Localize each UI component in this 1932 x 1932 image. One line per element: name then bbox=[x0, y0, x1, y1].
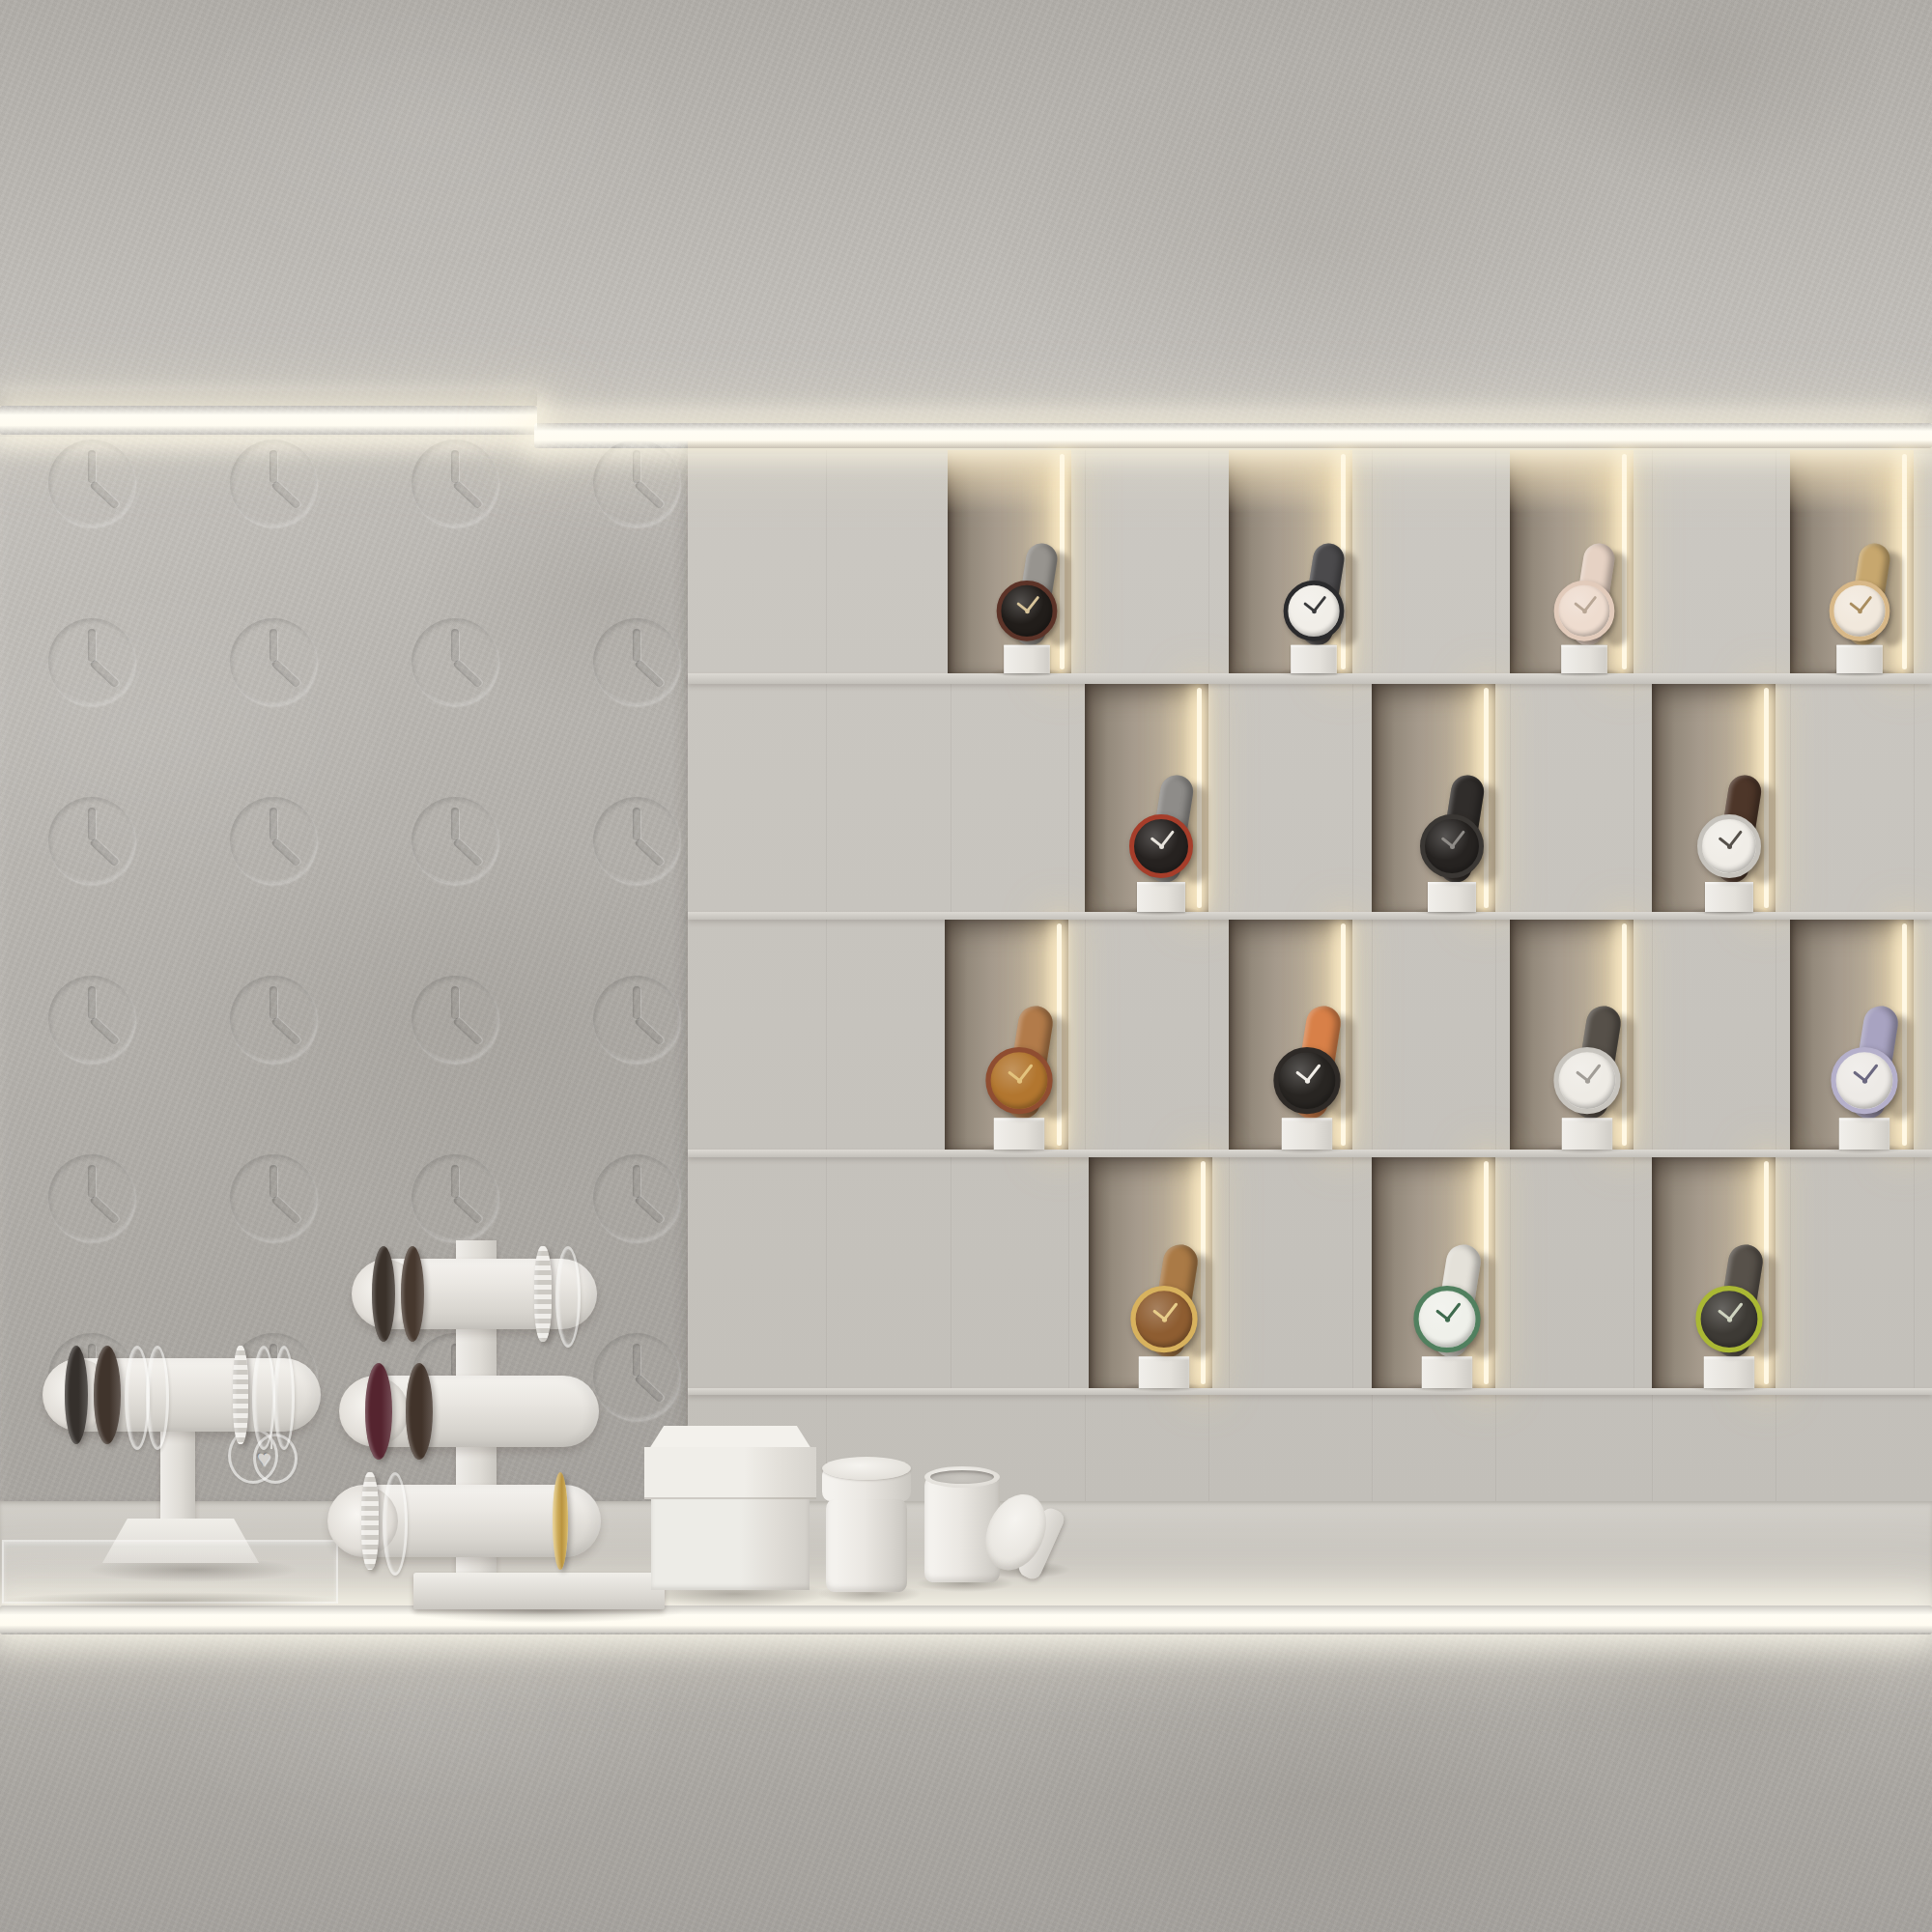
panel-seam bbox=[1352, 1157, 1354, 1388]
cube-body bbox=[651, 1499, 810, 1590]
embossed-clock bbox=[412, 976, 498, 1063]
embossed-clock bbox=[48, 797, 135, 884]
clock-minute-hand-icon bbox=[633, 629, 640, 662]
clock-minute-hand-icon bbox=[633, 1344, 640, 1377]
panel-seam bbox=[1652, 1395, 1654, 1501]
clock-minute-hand-icon bbox=[270, 1165, 277, 1198]
watch-crown-dot bbox=[1861, 1078, 1866, 1083]
watch-store-scene: ♥ bbox=[0, 0, 1932, 1932]
panel-seam bbox=[826, 920, 828, 1150]
clock-minute-hand-icon bbox=[451, 986, 459, 1019]
panel-seam bbox=[1085, 1395, 1087, 1501]
watch-stand-block bbox=[1282, 1118, 1333, 1150]
cube-top-face bbox=[649, 1426, 811, 1449]
embossed-clock bbox=[412, 440, 498, 526]
watch-face bbox=[1284, 581, 1345, 641]
bangle-clear bbox=[383, 1472, 408, 1576]
acrylic-tray bbox=[2, 1540, 338, 1604]
watch-stand-block bbox=[1562, 1118, 1613, 1150]
clock-minute-hand-icon bbox=[633, 1165, 640, 1198]
panel-seam bbox=[826, 450, 828, 673]
clock-hour-hand-icon bbox=[270, 480, 301, 509]
tbar-stand-triple-base bbox=[413, 1573, 665, 1609]
heart-charm-icon: ♥ bbox=[257, 1447, 270, 1470]
bangle-beaded bbox=[534, 1246, 552, 1342]
bangle-solid bbox=[401, 1246, 424, 1342]
watch-stand-block bbox=[1422, 1356, 1473, 1388]
clock-hour-hand-icon bbox=[89, 838, 120, 867]
clock-hour-hand-icon bbox=[270, 838, 301, 867]
watch-face bbox=[1129, 814, 1193, 878]
counter-led-strip bbox=[0, 1605, 1932, 1634]
panel-seam bbox=[1776, 450, 1777, 673]
panel-seam bbox=[1352, 684, 1354, 912]
bangle-clear bbox=[555, 1246, 581, 1348]
clock-minute-hand-icon bbox=[88, 1165, 96, 1198]
embossed-clock bbox=[230, 976, 317, 1063]
panel-seam bbox=[1208, 920, 1210, 1150]
watch-display bbox=[1521, 998, 1654, 1151]
watch-display bbox=[1098, 1236, 1231, 1389]
watch-face bbox=[1420, 814, 1484, 878]
clock-minute-hand-icon bbox=[270, 450, 277, 483]
watch-crown-dot bbox=[1016, 1078, 1021, 1083]
embossed-clock bbox=[48, 976, 135, 1063]
embossed-clock bbox=[48, 618, 135, 705]
panel-seam bbox=[826, 684, 828, 912]
clock-hour-hand-icon bbox=[452, 480, 483, 509]
cube-lid bbox=[644, 1447, 816, 1499]
clock-minute-hand-icon bbox=[451, 629, 459, 662]
watch-crown-dot bbox=[1858, 609, 1862, 613]
watch-crown-dot bbox=[1726, 1317, 1731, 1321]
clock-minute-hand-icon bbox=[88, 450, 96, 483]
embossed-clock bbox=[593, 440, 680, 526]
cove-led-strip-left bbox=[0, 406, 537, 435]
watch-display bbox=[1663, 1236, 1796, 1389]
clock-minute-hand-icon bbox=[451, 808, 459, 840]
clock-hour-hand-icon bbox=[270, 1016, 301, 1045]
clock-minute-hand-icon bbox=[633, 986, 640, 1019]
watch-stand-block bbox=[1836, 645, 1883, 673]
clock-hour-hand-icon bbox=[270, 1195, 301, 1224]
watch-display bbox=[1381, 1236, 1514, 1389]
watch-stand-block bbox=[1839, 1118, 1890, 1150]
bangle-solid bbox=[372, 1246, 395, 1342]
watch-display bbox=[1241, 998, 1374, 1151]
embossed-clock bbox=[593, 1333, 680, 1420]
panel-seam bbox=[1914, 684, 1916, 912]
watch-crown-dot bbox=[1444, 1317, 1449, 1321]
embossed-clock bbox=[593, 797, 680, 884]
watch-face bbox=[1830, 581, 1890, 641]
watch-display bbox=[1389, 767, 1515, 912]
panel-seam bbox=[1068, 684, 1070, 912]
embossed-clock bbox=[230, 618, 317, 705]
cove-recess-shadow-main bbox=[534, 412, 1932, 423]
clock-hour-hand-icon bbox=[89, 659, 120, 688]
panel-seam bbox=[1372, 1395, 1374, 1501]
clock-hour-hand-icon bbox=[634, 1195, 665, 1224]
clock-minute-hand-icon bbox=[270, 986, 277, 1019]
watch-face bbox=[1553, 1047, 1620, 1114]
cove-led-strip-main bbox=[534, 423, 1932, 448]
gift-box-cube bbox=[647, 1426, 813, 1592]
panel-seam bbox=[1634, 1157, 1635, 1388]
embossed-clock bbox=[593, 976, 680, 1063]
tbar-stand-triple-bar-1 bbox=[353, 1259, 597, 1329]
watch-crown-dot bbox=[1582, 609, 1587, 613]
bangle-solid bbox=[406, 1363, 433, 1460]
watch-face bbox=[1697, 814, 1761, 878]
embossed-clock bbox=[48, 440, 135, 526]
panel-seam bbox=[1495, 920, 1497, 1150]
panel-seam bbox=[1208, 1395, 1210, 1501]
clock-hour-hand-icon bbox=[452, 1195, 483, 1224]
watch-display bbox=[1098, 767, 1224, 912]
clock-hour-hand-icon bbox=[89, 1016, 120, 1045]
tbar-stand-single-post bbox=[160, 1428, 195, 1524]
back-wall-upper bbox=[0, 0, 1932, 437]
clock-minute-hand-icon bbox=[633, 450, 640, 483]
panel-seam bbox=[1208, 450, 1210, 673]
watch-display bbox=[1524, 536, 1644, 674]
clock-hour-hand-icon bbox=[452, 1016, 483, 1045]
panel-seam bbox=[1068, 1157, 1070, 1388]
clock-hour-hand-icon bbox=[452, 838, 483, 867]
watch-stand-block bbox=[1291, 645, 1337, 673]
panel-seam bbox=[1776, 920, 1777, 1150]
clock-hour-hand-icon bbox=[634, 1374, 665, 1403]
watch-stand-block bbox=[994, 1118, 1045, 1150]
watch-stand-block bbox=[1561, 645, 1607, 673]
panel-seam bbox=[1776, 1395, 1777, 1501]
watch-face bbox=[1413, 1286, 1480, 1352]
tbar-stand-single-bar bbox=[43, 1358, 321, 1432]
embossed-clock bbox=[412, 797, 498, 884]
watch-face bbox=[1130, 1286, 1197, 1352]
watch-face bbox=[1273, 1047, 1340, 1114]
panel-seam bbox=[1229, 684, 1231, 912]
clock-minute-hand-icon bbox=[633, 808, 640, 840]
gift-cylinder-lidded bbox=[824, 1457, 909, 1594]
watch-display bbox=[953, 998, 1086, 1151]
panel-seam bbox=[1495, 450, 1497, 673]
bangle-clear bbox=[273, 1346, 295, 1450]
embossed-clock bbox=[412, 1154, 498, 1241]
bangle-solid bbox=[365, 1363, 392, 1460]
watch-crown-dot bbox=[1450, 844, 1455, 849]
tbar-stand-triple-bar-2 bbox=[340, 1376, 599, 1447]
watch-display bbox=[1800, 536, 1919, 674]
watch-stand-block bbox=[1705, 882, 1753, 912]
clock-minute-hand-icon bbox=[88, 629, 96, 662]
bangle-clear bbox=[252, 1346, 275, 1450]
watch-crown-dot bbox=[1312, 609, 1317, 613]
watch-face bbox=[1831, 1047, 1897, 1114]
clock-hour-hand-icon bbox=[634, 838, 665, 867]
watch-face bbox=[985, 1047, 1052, 1114]
watch-crown-dot bbox=[1025, 609, 1030, 613]
clock-hour-hand-icon bbox=[634, 1016, 665, 1045]
clock-hour-hand-icon bbox=[270, 659, 301, 688]
watch-crown-dot bbox=[1159, 844, 1164, 849]
panel-seam bbox=[1652, 450, 1654, 673]
panel-seam bbox=[1495, 1395, 1497, 1501]
clock-hour-hand-icon bbox=[89, 480, 120, 509]
embossed-clock bbox=[230, 1154, 317, 1241]
clock-hour-hand-icon bbox=[89, 1195, 120, 1224]
watch-face bbox=[1554, 581, 1615, 641]
watch-face bbox=[997, 581, 1058, 641]
embossed-clock bbox=[230, 440, 317, 526]
watch-stand-block bbox=[1428, 882, 1476, 912]
clock-minute-hand-icon bbox=[451, 1165, 459, 1198]
watch-display bbox=[967, 536, 1087, 674]
watch-display bbox=[1799, 998, 1931, 1151]
embossed-clock bbox=[48, 1154, 135, 1241]
watch-stand-block bbox=[1004, 645, 1050, 673]
bangle-gold bbox=[553, 1472, 568, 1570]
watch-crown-dot bbox=[1727, 844, 1732, 849]
panel-seam bbox=[826, 1157, 828, 1388]
cove-recess-shadow-left bbox=[0, 388, 537, 406]
tbar-stand-triple-bar-3 bbox=[328, 1485, 601, 1557]
watch-crown-dot bbox=[1584, 1078, 1589, 1083]
panel-seam bbox=[1634, 684, 1635, 912]
cylinder-body bbox=[826, 1499, 907, 1592]
clock-hour-hand-icon bbox=[634, 480, 665, 509]
clock-minute-hand-icon bbox=[88, 986, 96, 1019]
bangle-beaded bbox=[233, 1346, 248, 1444]
watch-face bbox=[1695, 1286, 1762, 1352]
panel-seam bbox=[1085, 920, 1087, 1150]
embossed-clock bbox=[412, 618, 498, 705]
embossed-clock bbox=[593, 1154, 680, 1241]
clock-hour-hand-icon bbox=[634, 659, 665, 688]
clock-minute-hand-icon bbox=[88, 808, 96, 840]
bangle-solid bbox=[65, 1346, 88, 1444]
clock-minute-hand-icon bbox=[270, 629, 277, 662]
watch-crown-dot bbox=[1161, 1317, 1166, 1321]
bangle-clear bbox=[146, 1346, 169, 1450]
watch-stand-block bbox=[1704, 1356, 1755, 1388]
panel-seam bbox=[951, 684, 952, 912]
cylinder-top-ellipse bbox=[822, 1457, 911, 1480]
panel-seam bbox=[951, 1157, 952, 1388]
embossed-clock bbox=[593, 618, 680, 705]
watch-stand-block bbox=[1139, 1356, 1190, 1388]
watch-display bbox=[1666, 767, 1792, 912]
watch-stand-block bbox=[1137, 882, 1185, 912]
watch-display bbox=[1254, 536, 1374, 674]
bangle-solid bbox=[94, 1346, 121, 1444]
clock-hour-hand-icon bbox=[452, 659, 483, 688]
counter-front-face bbox=[0, 1633, 1932, 1932]
embossed-clock bbox=[230, 797, 317, 884]
clock-minute-hand-icon bbox=[270, 808, 277, 840]
panel-seam bbox=[1914, 1157, 1916, 1388]
cylinder-inner-ellipse bbox=[930, 1470, 994, 1484]
watch-crown-dot bbox=[1304, 1078, 1309, 1083]
clock-minute-hand-icon bbox=[451, 450, 459, 483]
bangle-beaded bbox=[361, 1472, 379, 1570]
